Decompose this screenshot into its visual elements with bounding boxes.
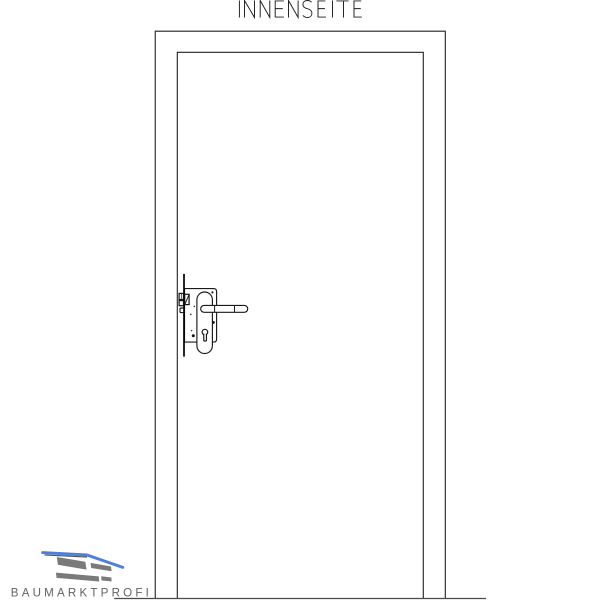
svg-text:BAUMARKTPROFI: BAUMARKTPROFI: [11, 586, 152, 599]
